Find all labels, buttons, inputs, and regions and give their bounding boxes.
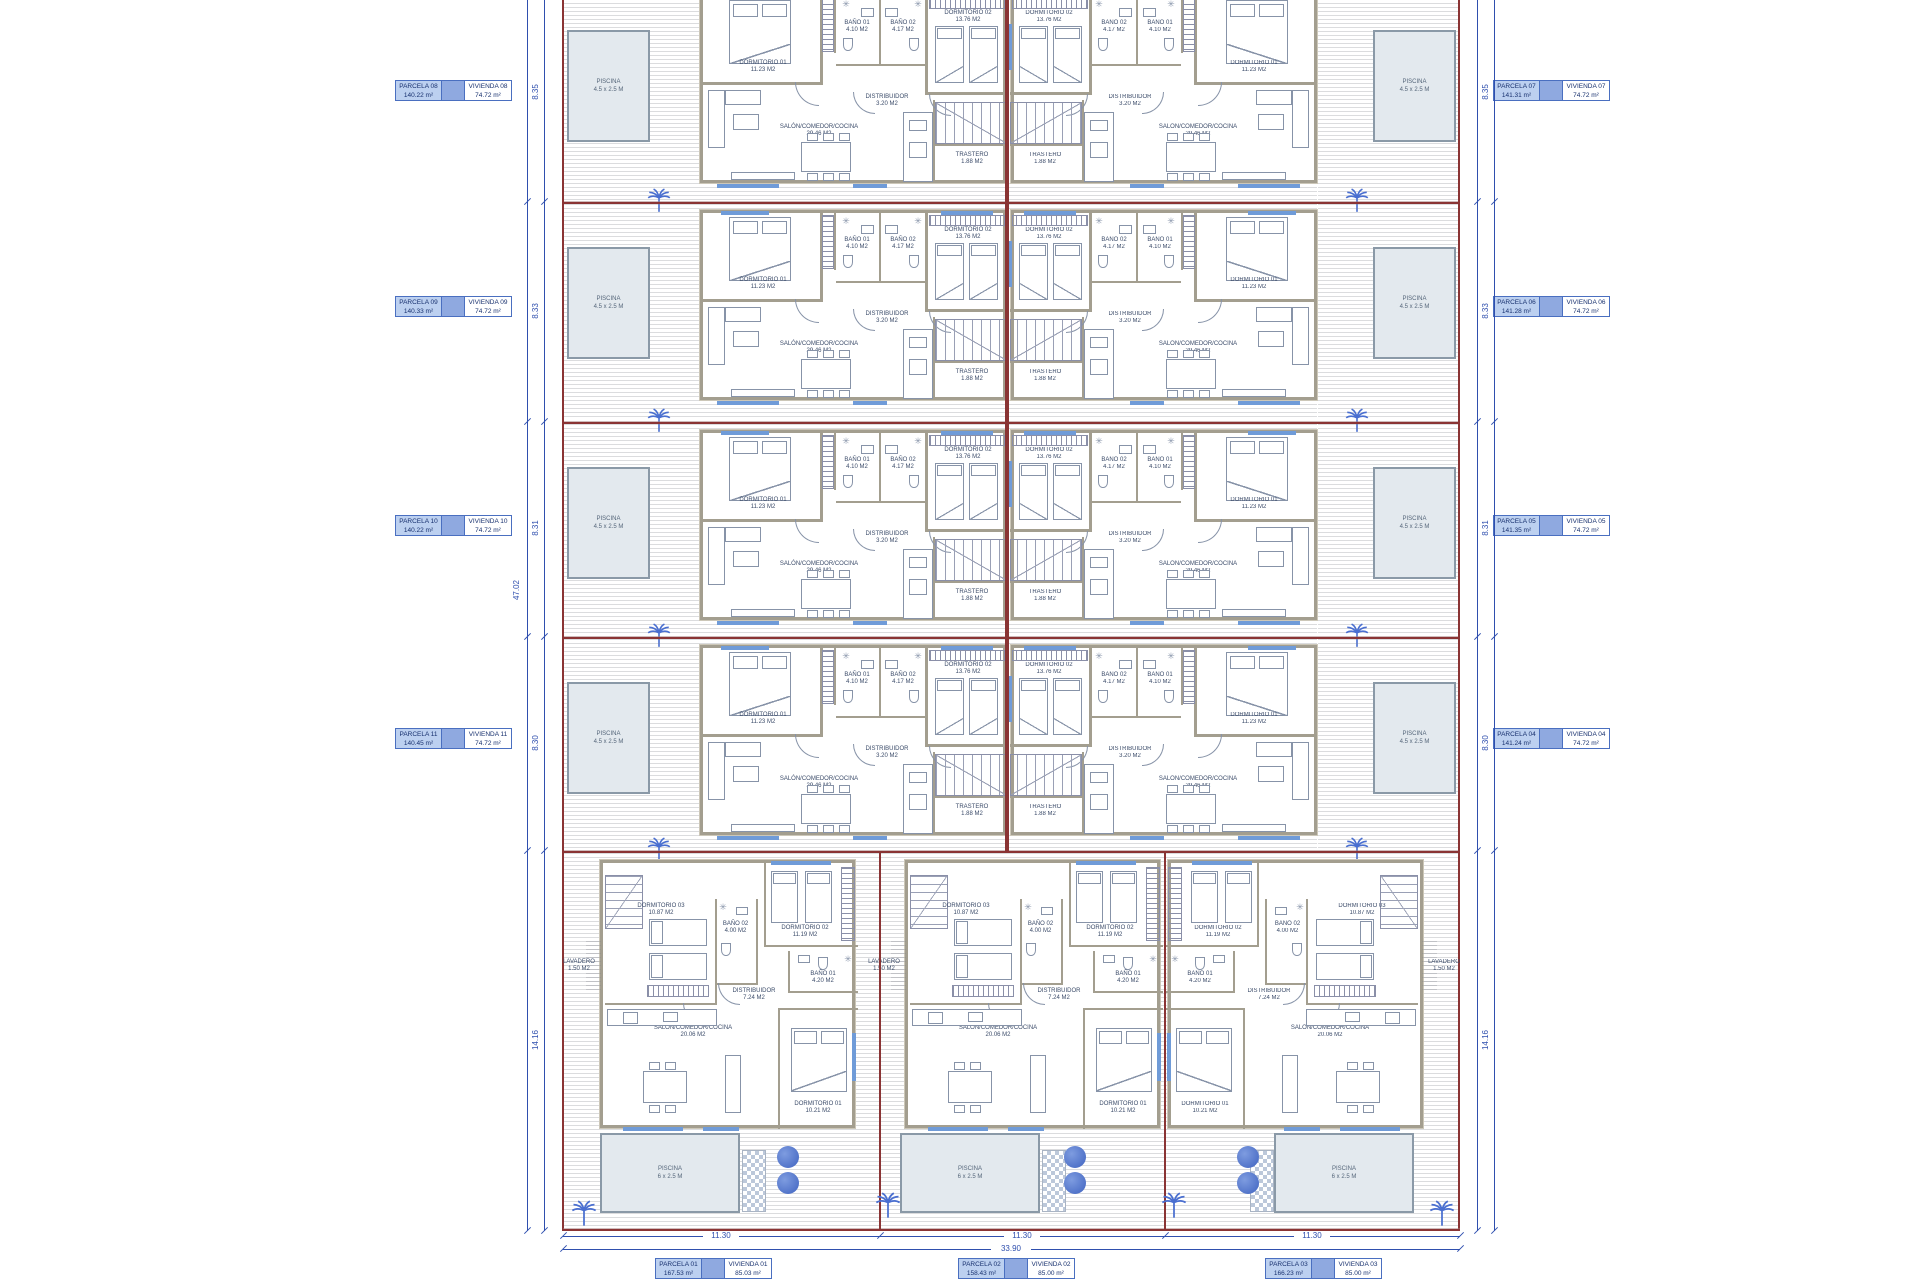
sofa [1292, 307, 1309, 365]
window [771, 861, 831, 865]
dimension-value: 33.90 [991, 1244, 1031, 1254]
pillow [1055, 245, 1080, 256]
window [1008, 1127, 1044, 1131]
parcel-label: PARCELA 07141.31 m²VIVIENDA 0774.72 m² [1493, 80, 1609, 101]
parcela-box: PARCELA 02158.43 m² [958, 1258, 1005, 1279]
bath-sink [861, 660, 874, 669]
dimension-value: 8.35 [531, 74, 541, 110]
stairs [1010, 754, 1082, 796]
bedroom1-label-area: 11.23 M2 [711, 67, 815, 74]
shower-icon: ✳ [913, 437, 923, 447]
bed-fold [969, 66, 998, 83]
bedroom2-label-area: 13.76 M2 [929, 669, 1007, 676]
sofa [708, 527, 725, 585]
swimming-pool: PISCINA4.5 x 2.5 M [1373, 682, 1456, 794]
door-arc [853, 744, 875, 766]
chair [1167, 390, 1178, 398]
kitchen-sink [968, 1012, 983, 1022]
wardrobe [1183, 0, 1195, 52]
vivienda-box: VIVIENDA 1174.72 m² [464, 728, 512, 749]
chair [1199, 173, 1210, 181]
parcela-name: PARCELA 06 [1494, 298, 1539, 307]
window [1238, 184, 1300, 188]
vivienda-name: VIVIENDA 11 [465, 730, 511, 739]
parcela-box: PARCELA 11140.45 m² [395, 728, 442, 749]
chair [1183, 133, 1194, 141]
bed-fold [969, 503, 998, 520]
bed-fold [1096, 1071, 1152, 1091]
pillow [1227, 873, 1250, 884]
interior-wall [1092, 716, 1181, 718]
parcela-area: 158.43 m² [959, 1269, 1004, 1278]
interior-wall [1083, 1008, 1163, 1010]
storage-label: TRASTERO [1012, 369, 1078, 376]
bedroom3-label: DORMITORIO 03 [916, 903, 1016, 910]
shower-icon: ✳ [913, 0, 923, 10]
kitchen-sink [663, 1012, 678, 1022]
coffee-table [1258, 766, 1284, 782]
chair [839, 825, 850, 833]
bath2-label: BAÑO 02 [714, 921, 757, 928]
bath1-label: BAÑO 01 [835, 457, 879, 464]
bath1-label-area: 4.20 M2 [1167, 978, 1233, 985]
stairs [1010, 539, 1082, 581]
bath1-label-area: 4.10 M2 [1138, 464, 1182, 471]
chair [807, 610, 818, 618]
bath1-label-area: 4.10 M2 [835, 679, 879, 686]
party-wall-line [1005, 0, 1009, 851]
bedroom3-label: DORMITORIO 03 [611, 903, 711, 910]
window [1024, 646, 1076, 650]
pool-size-label: 4.5 x 2.5 M [569, 304, 648, 311]
toilet [1098, 255, 1108, 268]
bath2-label: BAÑO 02 [1019, 921, 1062, 928]
storage-label: TRASTERO [1012, 152, 1078, 159]
window [1157, 1033, 1161, 1081]
window [853, 836, 887, 840]
living-label: SALÓN/COMEDOR/COCINA [628, 1025, 758, 1032]
stairs [935, 102, 1007, 144]
window [721, 646, 769, 650]
bath-sink [861, 8, 874, 17]
bath1-label: BAÑO 01 [1138, 672, 1182, 679]
bath-sink [885, 8, 898, 17]
bath-sink [1143, 660, 1156, 669]
toilet [909, 255, 919, 268]
dimension-value: 8.33 [531, 293, 541, 329]
wardrobe [1183, 435, 1195, 489]
dwelling-unit: DORMITORIO 0111.23 M2✳✳BAÑO 014.10 M2BAÑ… [1011, 210, 1317, 400]
bedroom2-label-area: 13.76 M2 [1010, 669, 1088, 676]
interior-wall [925, 433, 928, 531]
palm-tree-icon [570, 1200, 598, 1228]
bedroom1-label-area: 11.23 M2 [711, 504, 815, 511]
interior-wall [925, 213, 928, 311]
bath2-label: BAÑO 02 [881, 237, 925, 244]
vivienda-box: VIVIENDA 0474.72 m² [1562, 728, 1610, 749]
vivienda-area: 85.03 m² [725, 1269, 771, 1278]
bath2-label-area: 4.00 M2 [1266, 928, 1309, 935]
storage-label-area: 1.88 M2 [1012, 376, 1078, 383]
interior-wall [764, 945, 858, 947]
toilet [843, 255, 853, 268]
shower-icon: ✳ [1166, 437, 1176, 447]
shower-icon: ✳ [841, 652, 851, 662]
chair [1167, 350, 1178, 358]
pillow [1206, 1031, 1229, 1044]
bath1-label-area: 4.10 M2 [835, 27, 879, 34]
pillow [1259, 4, 1284, 17]
bedroom2-label-area: 13.76 M2 [929, 454, 1007, 461]
bush-icon [1237, 1172, 1259, 1194]
wardrobe [1012, 215, 1088, 226]
pillow [762, 4, 787, 17]
chair [1347, 1062, 1358, 1070]
bed-fold [935, 503, 964, 520]
storage-label-area: 1.88 M2 [939, 811, 1005, 818]
pillow [1193, 873, 1216, 884]
bath1-label: BAÑO 01 [1167, 971, 1233, 978]
pillow [821, 1031, 844, 1044]
chair [1167, 570, 1178, 578]
bedroom2-label: DORMITORIO 02 [1010, 662, 1088, 669]
stove [623, 1012, 638, 1024]
toilet [1123, 957, 1133, 970]
sofa [1256, 307, 1292, 322]
window [623, 1127, 683, 1131]
dimension-tick [1474, 1227, 1481, 1234]
vivienda-box: VIVIENDA 0385.00 m² [1334, 1258, 1382, 1279]
bath1-label: BAÑO 01 [835, 20, 879, 27]
coffee-table [1258, 331, 1284, 347]
bath2-label: BAÑO 02 [1266, 921, 1309, 928]
chair [839, 390, 850, 398]
pillow [651, 955, 663, 978]
parcela-name: PARCELA 11 [396, 730, 441, 739]
interior-wall [1265, 899, 1267, 985]
shower-icon: ✳ [841, 217, 851, 227]
sofa [708, 742, 725, 800]
swimming-pool: PISCINA4.5 x 2.5 M [1373, 30, 1456, 142]
interior-wall [1092, 64, 1181, 66]
storage-label-area: 1.88 M2 [1012, 811, 1078, 818]
stairs [935, 539, 1007, 581]
dimension-tick [1457, 1245, 1464, 1252]
laundry-label: LAVADERO [864, 959, 904, 966]
interior-wall [925, 648, 928, 746]
bedroom2-label: DORMITORIO 02 [766, 925, 844, 932]
dimension-value: 8.33 [1481, 293, 1491, 329]
bath1-label: BAÑO 01 [1138, 20, 1182, 27]
bedroom2-label-area: 13.76 M2 [929, 234, 1007, 241]
bed-fold [935, 718, 964, 735]
chair [807, 570, 818, 578]
parcela-box: PARCELA 04141.24 m² [1493, 728, 1540, 749]
bush-icon [777, 1172, 799, 1194]
swimming-pool: PISCINA4.5 x 2.5 M [567, 247, 650, 359]
vivienda-name: VIVIENDA 02 [1028, 1260, 1074, 1269]
toilet [1164, 475, 1174, 488]
pillow [1259, 656, 1284, 669]
chair [807, 785, 818, 793]
window [853, 184, 887, 188]
chair [807, 390, 818, 398]
bedroom1-label: DORMITORIO 01 [1202, 712, 1306, 719]
vivienda-box: VIVIENDA 0185.03 m² [724, 1258, 772, 1279]
bath2-label-area: 4.17 M2 [1092, 244, 1136, 251]
pillow [762, 441, 787, 454]
chair [823, 390, 834, 398]
chair [823, 825, 834, 833]
pillow [937, 245, 962, 256]
bedroom1-label-area: 11.23 M2 [711, 284, 815, 291]
pillow [971, 465, 996, 476]
shower-icon: ✳ [1023, 903, 1033, 913]
pool-label: PISCINA [569, 296, 648, 303]
interior-wall [1010, 361, 1084, 363]
interior-wall [778, 1008, 858, 1010]
interior-wall [836, 501, 925, 503]
chair [823, 350, 834, 358]
bath1-label-area: 4.20 M2 [1095, 978, 1161, 985]
bath1-label: BAÑO 01 [1095, 971, 1161, 978]
pillow [1259, 221, 1284, 234]
interior-wall [1010, 796, 1084, 798]
swimming-pool: PISCINA4.5 x 2.5 M [567, 467, 650, 579]
door-arc [853, 529, 875, 551]
chair [649, 1105, 660, 1113]
sofa [725, 90, 761, 105]
pillow [937, 680, 962, 691]
living-label: SALÓN/COMEDOR/COCINA [761, 341, 877, 348]
interior-wall [925, 0, 928, 94]
interior-wall [1092, 281, 1181, 283]
toilet [1164, 255, 1174, 268]
window [1024, 211, 1076, 215]
living-label: SALÓN/COMEDOR/COCINA [1265, 1025, 1395, 1032]
storage-label-area: 1.88 M2 [939, 596, 1005, 603]
parcela-box: PARCELA 07141.31 m² [1493, 80, 1540, 101]
dimension-value: 11.30 [1294, 1231, 1330, 1241]
bath-sink [1213, 955, 1225, 963]
vivienda-name: VIVIENDA 04 [1563, 730, 1609, 739]
living-label-area: 29.46 M2 [1140, 131, 1256, 138]
coffee-table [733, 766, 759, 782]
bath-sink [1119, 445, 1132, 454]
stove [909, 359, 927, 375]
dining-table [1166, 142, 1216, 172]
interior-wall [788, 991, 858, 993]
living-label-area: 20.06 M2 [1265, 1032, 1395, 1039]
dwelling-unit: DORMITORIO 0111.23 M2✳✳BAÑO 014.10 M2BAÑ… [700, 430, 1006, 620]
pillow [1360, 921, 1372, 944]
wardrobe [952, 985, 1014, 997]
dimension-value: 14.16 [531, 1022, 541, 1058]
interior-wall [1069, 945, 1163, 947]
interior-wall [1092, 501, 1181, 503]
chair [839, 785, 850, 793]
bush-icon [1064, 1172, 1086, 1194]
chair [970, 1105, 981, 1113]
chair [1167, 785, 1178, 793]
kitchen-sink [1090, 337, 1108, 348]
dimension-tick [1457, 1232, 1464, 1239]
vivienda-name: VIVIENDA 06 [1563, 298, 1609, 307]
sofa [1292, 90, 1309, 148]
interior-wall [933, 361, 1007, 363]
dimension-value: 14.16 [1481, 1022, 1491, 1058]
parcel-label: PARCELA 02158.43 m²VIVIENDA 0285.00 m² [958, 1258, 1074, 1279]
dining-table [1336, 1071, 1380, 1103]
parcela-area: 140.45 m² [396, 739, 441, 748]
vivienda-box: VIVIENDA 0285.00 m² [1027, 1258, 1075, 1279]
storage-label: TRASTERO [939, 804, 1005, 811]
chair [1167, 133, 1178, 141]
chair [1183, 390, 1194, 398]
shower-icon: ✳ [841, 0, 851, 10]
pool-size-label: 4.5 x 2.5 M [1375, 739, 1454, 746]
tv-bench [731, 172, 795, 180]
bedroom1-label: DORMITORIO 01 [711, 60, 815, 67]
vivienda-area: 74.72 m² [465, 307, 511, 316]
window [717, 184, 779, 188]
living-label-area: 20.06 M2 [628, 1032, 758, 1039]
parcel-boundary-line [563, 637, 1460, 639]
bedroom2-label: DORMITORIO 02 [929, 227, 1007, 234]
bedroom2-label-area: 11.19 M2 [1179, 932, 1257, 939]
chair [649, 1062, 660, 1070]
swimming-pool: PISCINA6 x 2.5 M [1274, 1133, 1414, 1213]
pool-size-label: 6 x 2.5 M [602, 1174, 738, 1181]
vivienda-name: VIVIENDA 07 [1563, 82, 1609, 91]
toilet [909, 38, 919, 51]
interior-wall [715, 899, 717, 1004]
chair [839, 570, 850, 578]
bath2-label: BAÑO 02 [1092, 237, 1136, 244]
bed-fold [791, 1071, 847, 1091]
parcela-area: 140.22 m² [396, 526, 441, 535]
sofa [1256, 527, 1292, 542]
bedroom1-label: DORMITORIO 01 [1202, 60, 1306, 67]
kitchen-sink [1090, 557, 1108, 568]
vivienda-box: VIVIENDA 0874.72 m² [464, 80, 512, 101]
parcela-area: 140.33 m² [396, 307, 441, 316]
dwelling-unit: LAVADERO1.50 M2DORMITORIO 0310.87 M2✳BAÑ… [600, 860, 855, 1128]
tv-bench [731, 389, 795, 397]
toilet [1164, 38, 1174, 51]
interior-wall [1089, 648, 1092, 746]
bedroom1-label: DORMITORIO 01 [711, 712, 815, 719]
pillow [1021, 680, 1046, 691]
wardrobe [822, 0, 834, 52]
bedroom3-label: DORMITORIO 03 [1312, 903, 1412, 910]
pool-label: PISCINA [1375, 79, 1454, 86]
bedroom1-label-area: 11.23 M2 [1202, 284, 1306, 291]
stove [909, 794, 927, 810]
wardrobe [1012, 435, 1088, 446]
laundry-label: LAVADERO [559, 959, 599, 966]
stove [1090, 579, 1108, 595]
bedroom1-label: DORMITORIO 01 [1202, 497, 1306, 504]
chair [839, 173, 850, 181]
living-label-area: 20.06 M2 [933, 1032, 1063, 1039]
pillow [733, 441, 758, 454]
living-label-area: 29.46 M2 [761, 131, 877, 138]
chair [1183, 570, 1194, 578]
door-arc [1142, 529, 1164, 551]
interior-wall [933, 796, 1007, 798]
pillow [971, 28, 996, 39]
parcela-area: 141.28 m² [1494, 307, 1539, 316]
shower-icon: ✳ [718, 903, 728, 913]
laundry-label-area: 1.50 M2 [559, 966, 599, 973]
parcel-boundary-line [879, 851, 881, 1231]
bed-fold [1019, 283, 1048, 300]
parcel-boundary-line [1458, 0, 1460, 1231]
stove [1090, 359, 1108, 375]
bath1-label-area: 4.10 M2 [1138, 27, 1182, 34]
storage-label: TRASTERO [1012, 804, 1078, 811]
bath-sink [885, 660, 898, 669]
wardrobe [929, 435, 1005, 446]
door-arc [853, 309, 875, 331]
bedroom2-label: DORMITORIO 02 [929, 447, 1007, 454]
tv-bench [1222, 824, 1286, 832]
kitchen-sink [909, 120, 927, 131]
swimming-pool: PISCINA4.5 x 2.5 M [1373, 247, 1456, 359]
shower-icon: ✳ [1094, 437, 1104, 447]
living-label: SALÓN/COMEDOR/COCINA [1140, 341, 1256, 348]
bath-sink [736, 907, 748, 915]
pillow [733, 221, 758, 234]
vivienda-area: 85.00 m² [1028, 1269, 1074, 1278]
door-arc [795, 519, 819, 543]
dimension-line [544, 0, 545, 1231]
pillow [651, 921, 663, 944]
door-arc [1198, 82, 1222, 106]
stairs [935, 754, 1007, 796]
chair [807, 133, 818, 141]
pillow [733, 656, 758, 669]
tv-bench [731, 609, 795, 617]
swimming-pool: PISCINA4.5 x 2.5 M [567, 682, 650, 794]
parcel-label: PARCELA 06141.28 m²VIVIENDA 0674.72 m² [1493, 296, 1609, 317]
bedroom2-label: DORMITORIO 02 [1179, 925, 1257, 932]
bed-fold [969, 718, 998, 735]
bath2-label-area: 4.17 M2 [1092, 464, 1136, 471]
bath1-label-area: 4.10 M2 [835, 464, 879, 471]
door-arc [795, 734, 819, 758]
vivienda-area: 74.72 m² [1563, 91, 1609, 100]
pool-size-label: 4.5 x 2.5 M [1375, 87, 1454, 94]
living-label: SALÓN/COMEDOR/COCINA [761, 561, 877, 568]
coffee-table [733, 114, 759, 130]
door-arc [1198, 734, 1222, 758]
coffee-table [1258, 114, 1284, 130]
bedroom1-label-area: 11.23 M2 [1202, 719, 1306, 726]
wardrobe [647, 985, 709, 997]
storage-label: TRASTERO [939, 152, 1005, 159]
toilet [909, 690, 919, 703]
bath1-label-area: 4.20 M2 [790, 978, 856, 985]
vivienda-name: VIVIENDA 08 [465, 82, 511, 91]
bath2-label: BAÑO 02 [881, 20, 925, 27]
pillow [807, 873, 830, 884]
pillow [1112, 873, 1135, 884]
dimension-value: 11.30 [703, 1231, 739, 1241]
interior-wall [1010, 581, 1084, 583]
bath-sink [885, 445, 898, 454]
